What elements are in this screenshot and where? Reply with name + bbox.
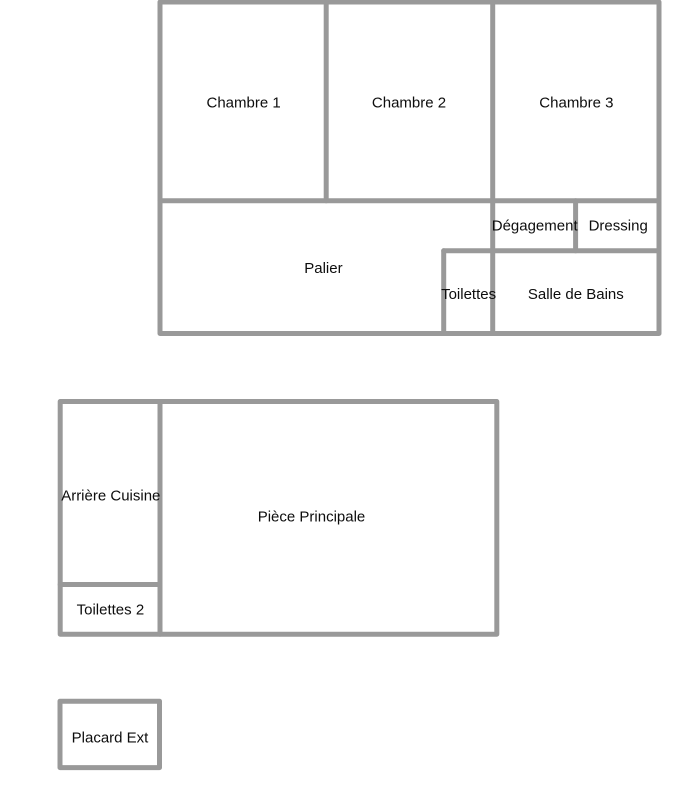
svg-text:Chambre 3: Chambre 3 — [539, 95, 613, 112]
svg-text:Toilettes 2: Toilettes 2 — [77, 602, 145, 619]
svg-text:Dégagement: Dégagement — [492, 218, 579, 235]
svg-text:Chambre 1: Chambre 1 — [206, 95, 280, 112]
svg-text:Toilettes: Toilettes — [441, 286, 496, 303]
svg-text:Chambre 2: Chambre 2 — [372, 95, 446, 112]
svg-text:Palier: Palier — [304, 260, 342, 277]
svg-text:Dressing: Dressing — [589, 218, 648, 235]
svg-text:Arrière Cuisine: Arrière Cuisine — [61, 488, 160, 505]
svg-text:Salle de Bains: Salle de Bains — [528, 286, 624, 303]
svg-text:Placard Ext: Placard Ext — [72, 730, 150, 747]
svg-text:Pièce Principale: Pièce Principale — [258, 509, 366, 526]
